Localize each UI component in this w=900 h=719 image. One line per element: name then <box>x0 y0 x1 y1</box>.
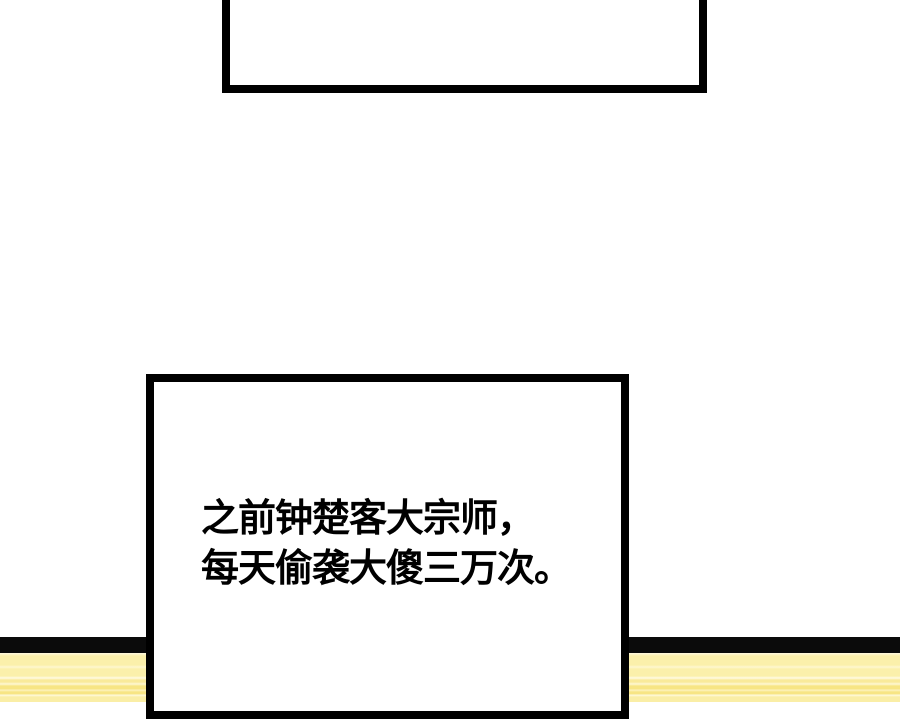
dialogue-line-2: 每天偷袭大傻三万次。 <box>201 544 571 594</box>
dialogue-text: 之前钟楚客大宗师， 每天偷袭大傻三万次。 <box>201 494 571 594</box>
speech-box-dialogue: 之前钟楚客大宗师， 每天偷袭大傻三万次。 <box>146 374 629 719</box>
dialogue-line-1: 之前钟楚客大宗师， <box>201 494 571 544</box>
comic-page: { "page": { "type": "comic-panel", "back… <box>0 0 900 702</box>
speech-box-top <box>222 0 707 93</box>
